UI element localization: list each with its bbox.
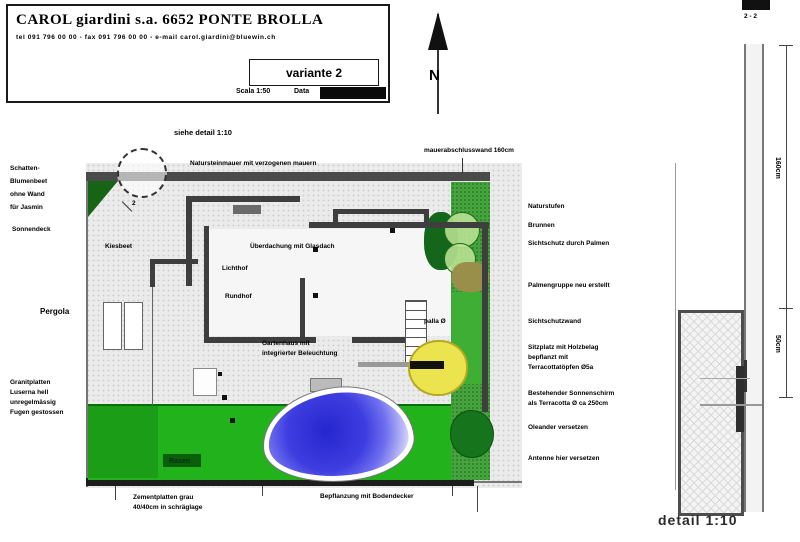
dimension-tick	[779, 397, 793, 398]
wall-segment	[482, 222, 488, 412]
right-label-sonnenschirm-2: als Terracotta Ø ca 250cm	[528, 400, 608, 408]
zement-label-1: Zementplatten grau	[133, 494, 193, 502]
left-label-2a: Granitplatten	[10, 379, 50, 387]
detail-ref-line	[700, 404, 762, 406]
section-marker-number: 2	[132, 200, 136, 208]
post-dot	[390, 228, 395, 233]
left-label-1d: für Jasmin	[10, 204, 43, 212]
lichthof-label: Lichthof	[222, 265, 248, 273]
detail-hatched-wall	[678, 310, 744, 516]
detail-caption: detail 1:10	[658, 512, 737, 528]
post-dot	[313, 293, 318, 298]
pergola-slat	[124, 302, 143, 350]
wall-pier	[233, 205, 261, 214]
bottom-boundary-extension	[474, 481, 522, 483]
right-label-brunnen: Brunnen	[528, 222, 555, 230]
garden-plan-canvas: CAROL giardini s.a. 6652 PONTE BROLLA te…	[0, 0, 800, 542]
date-value-block	[320, 87, 386, 99]
existing-tree-circle	[117, 148, 167, 198]
wall-segment	[333, 209, 338, 223]
right-label-sitzplatz-2: bepflanzt mit	[528, 354, 568, 362]
zement-label-2: 40/40cm in schräglage	[133, 504, 202, 512]
scale-line: Scala 1:50 Data	[236, 88, 386, 100]
bepflanzung-label: Bepflanzung mit Bodendecker	[320, 493, 414, 501]
variant-label: variante 2	[286, 66, 342, 80]
right-label-sichtschutz: Sichtschutz durch Palmen	[528, 240, 609, 248]
dimension-line	[786, 46, 787, 398]
wall-end-label: mauerabschlusswand 160cm	[424, 147, 514, 155]
lawn-shade	[88, 406, 158, 478]
post-dot	[230, 418, 235, 423]
wall-segment	[204, 226, 209, 342]
detail-wall-line	[744, 44, 746, 512]
pool	[257, 379, 418, 489]
right-label-sichtschutzwand: Sichtschutzwand	[528, 318, 581, 326]
wall-segment	[333, 209, 429, 214]
dimension-tick	[779, 45, 793, 46]
wall-segment	[188, 196, 300, 202]
detail-wall-fill	[746, 44, 762, 512]
company-name: CAROL giardini s.a. 6652 PONTE BROLLA	[16, 12, 323, 29]
detail-section-mark: 2 - 2	[744, 13, 757, 21]
detail-wall-line	[762, 44, 764, 512]
date-label: Data	[294, 88, 309, 95]
palla-label: palla Ø	[424, 318, 446, 326]
detail-fixing-bar	[736, 366, 744, 432]
see-detail-label: siehe detail 1:10	[174, 128, 232, 138]
bush	[450, 410, 494, 458]
scale-label: Scala 1:50	[236, 88, 270, 95]
wall-segment	[424, 209, 429, 223]
dimension-text-160cm: 160cm	[774, 157, 781, 179]
path-edge-line	[152, 287, 153, 405]
dimension-tick	[779, 308, 793, 309]
wall-segment	[186, 196, 192, 286]
pergola-label: Pergola	[40, 307, 69, 317]
left-label-2b: Luserna hell	[10, 389, 48, 397]
right-label-sitzplatz-3: Terracottatöpfen Ø5a	[528, 364, 593, 372]
left-label-2d: Fugen gestossen	[10, 409, 63, 417]
dimension-tick	[452, 486, 453, 496]
north-arrow-head	[428, 12, 448, 50]
north-letter: N	[429, 66, 440, 86]
wall-segment	[150, 259, 198, 264]
pergola-slat	[103, 302, 122, 350]
property-line	[675, 163, 676, 490]
rundhof-label: Rundhof	[225, 293, 252, 301]
right-label-sitzplatz-1: Sitzplatz mit Holzbelag	[528, 344, 598, 352]
tree-trunk-mark	[410, 361, 444, 369]
gartenhaus-label-1: Gartenhaus mit	[262, 340, 310, 348]
glass-roof-label: Überdachung mit Glasdach	[250, 243, 335, 251]
dimension-tick	[115, 486, 116, 500]
right-label-naturstufen: Naturstufen	[528, 203, 564, 211]
variant-box: variante 2	[249, 59, 379, 86]
company-contact: tel 091 796 00 00 - fax 091 796 00 00 - …	[16, 34, 276, 41]
leader-line	[462, 158, 463, 174]
right-label-sonnenschirm-1: Bestehender Sonnenschirm	[528, 390, 614, 398]
dimension-tick	[477, 486, 478, 512]
sonnendeck-label: Sonnendeck	[12, 226, 51, 234]
left-label-2c: unregelmässig	[10, 399, 56, 407]
right-label-oleander: Oleander versetzen	[528, 424, 588, 432]
dimension-text-50cm: 50cm	[774, 335, 781, 353]
wall-segment	[150, 259, 155, 287]
detail-ref-line	[700, 378, 750, 379]
post-dot	[218, 372, 222, 376]
rasen-tag: Rasen	[163, 454, 201, 467]
left-label-1c: ohne Wand	[10, 191, 45, 199]
kiesbeet-label: Kiesbeet	[105, 243, 132, 251]
right-label-palmengruppe: Palmengruppe neu erstellt	[528, 282, 610, 290]
wall-segment	[309, 222, 489, 228]
garden-table	[193, 368, 217, 396]
top-wall-label: Natursteinmauer mit verzogenen mauern	[190, 160, 316, 168]
right-label-antenne: Antenne hier versetzen	[528, 455, 600, 463]
rasen-label: Rasen	[169, 457, 190, 466]
post-dot	[222, 395, 227, 400]
detail-top-marker	[742, 0, 770, 10]
gartenhaus-label-2: integrierter Beleuchtung	[262, 350, 337, 358]
left-label-1a: Schatten-	[10, 165, 40, 173]
title-block: CAROL giardini s.a. 6652 PONTE BROLLA te…	[6, 4, 390, 103]
wall-segment	[300, 278, 305, 343]
dimension-tick	[262, 486, 263, 496]
left-label-1b: Blumenbeet	[10, 178, 47, 186]
